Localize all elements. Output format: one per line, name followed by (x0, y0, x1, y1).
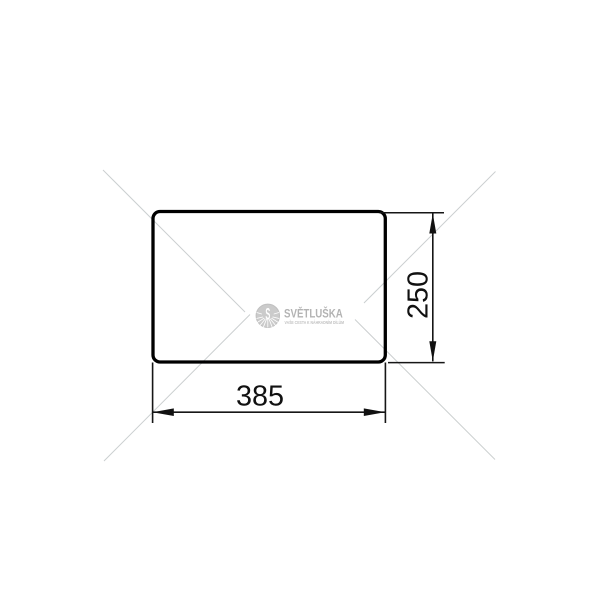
svg-text:S: S (265, 304, 270, 323)
svg-text:385: 385 (236, 381, 284, 413)
svg-text:VAŠE CESTA K NÁHRADNÍM DÍLŮM: VAŠE CESTA K NÁHRADNÍM DÍLŮM (285, 318, 345, 325)
svg-text:SVĚTLUŠKA: SVĚTLUŠKA (284, 306, 343, 321)
svg-text:250: 250 (403, 271, 435, 319)
